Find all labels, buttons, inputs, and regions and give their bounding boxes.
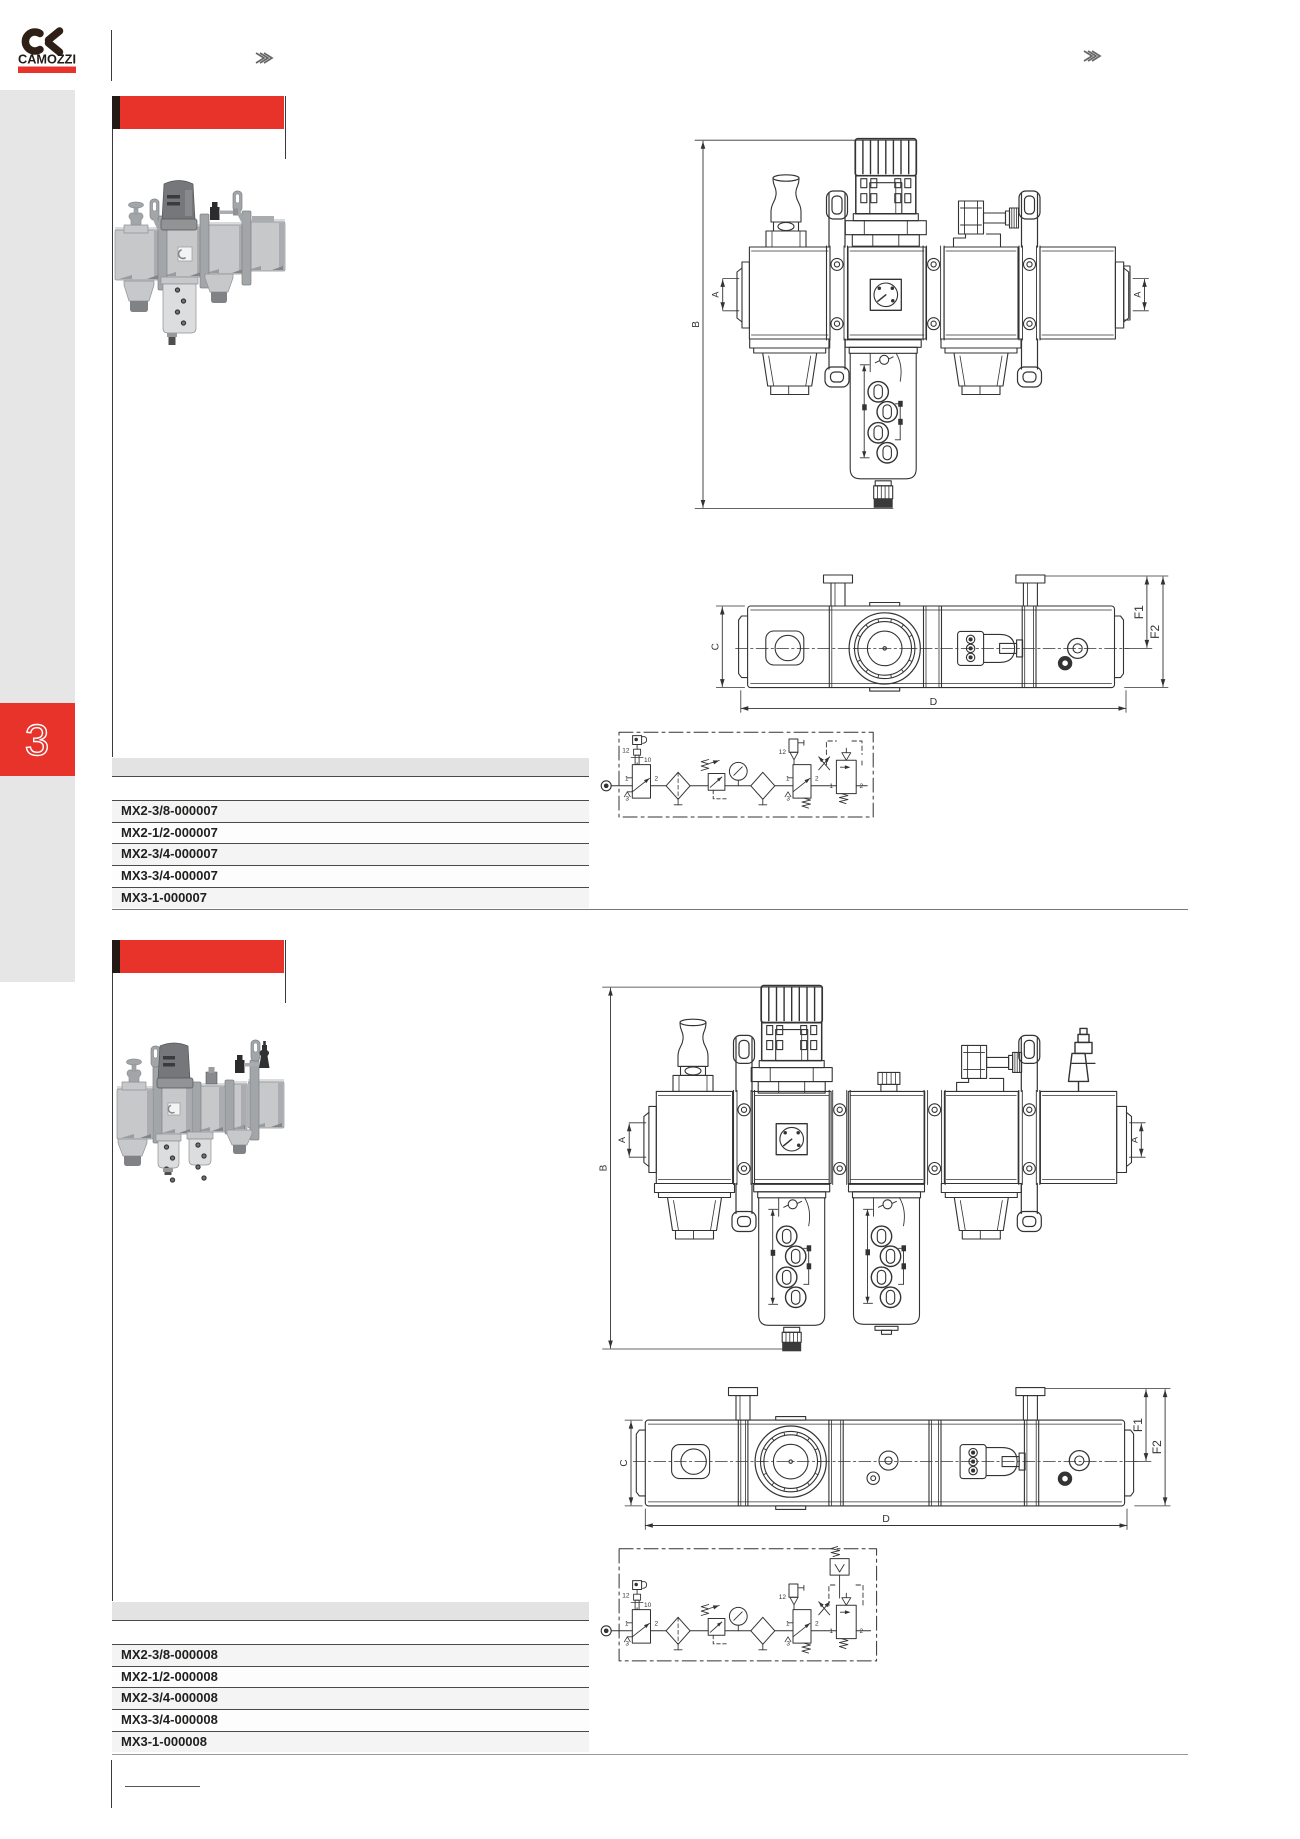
- svg-text:1: 1: [786, 1620, 790, 1627]
- svg-text:12: 12: [779, 749, 787, 756]
- svg-text:1: 1: [786, 775, 790, 782]
- svg-text:A: A: [711, 292, 721, 298]
- svg-text:D: D: [882, 1513, 890, 1525]
- svg-text:12: 12: [779, 1594, 787, 1601]
- svg-text:F1: F1: [1132, 605, 1146, 619]
- svg-text:F2: F2: [1148, 624, 1162, 638]
- svg-text:F2: F2: [1150, 1440, 1164, 1454]
- svg-text:2: 2: [815, 775, 819, 782]
- svg-text:A: A: [1129, 1137, 1139, 1143]
- svg-text:3: 3: [786, 1640, 790, 1647]
- svg-text:B: B: [691, 321, 702, 328]
- svg-text:12: 12: [622, 748, 630, 755]
- svg-text:D: D: [930, 696, 938, 708]
- svg-text:F1: F1: [1131, 1418, 1145, 1432]
- svg-text:10: 10: [644, 1602, 652, 1609]
- svg-text:12: 12: [622, 1593, 630, 1600]
- svg-text:1: 1: [625, 775, 629, 782]
- svg-text:C: C: [619, 1459, 630, 1466]
- svg-text:3: 3: [786, 795, 790, 802]
- svg-text:3: 3: [625, 795, 629, 802]
- svg-text:A: A: [617, 1137, 627, 1143]
- svg-text:2: 2: [815, 1620, 819, 1627]
- svg-text:10: 10: [644, 757, 652, 764]
- svg-text:2: 2: [655, 775, 659, 782]
- svg-text:3: 3: [625, 1640, 629, 1647]
- svg-text:A: A: [1133, 292, 1143, 298]
- svg-text:B: B: [599, 1164, 610, 1171]
- svg-text:C: C: [710, 643, 721, 650]
- svg-text:2: 2: [655, 1620, 659, 1627]
- svg-text:1: 1: [625, 1620, 629, 1627]
